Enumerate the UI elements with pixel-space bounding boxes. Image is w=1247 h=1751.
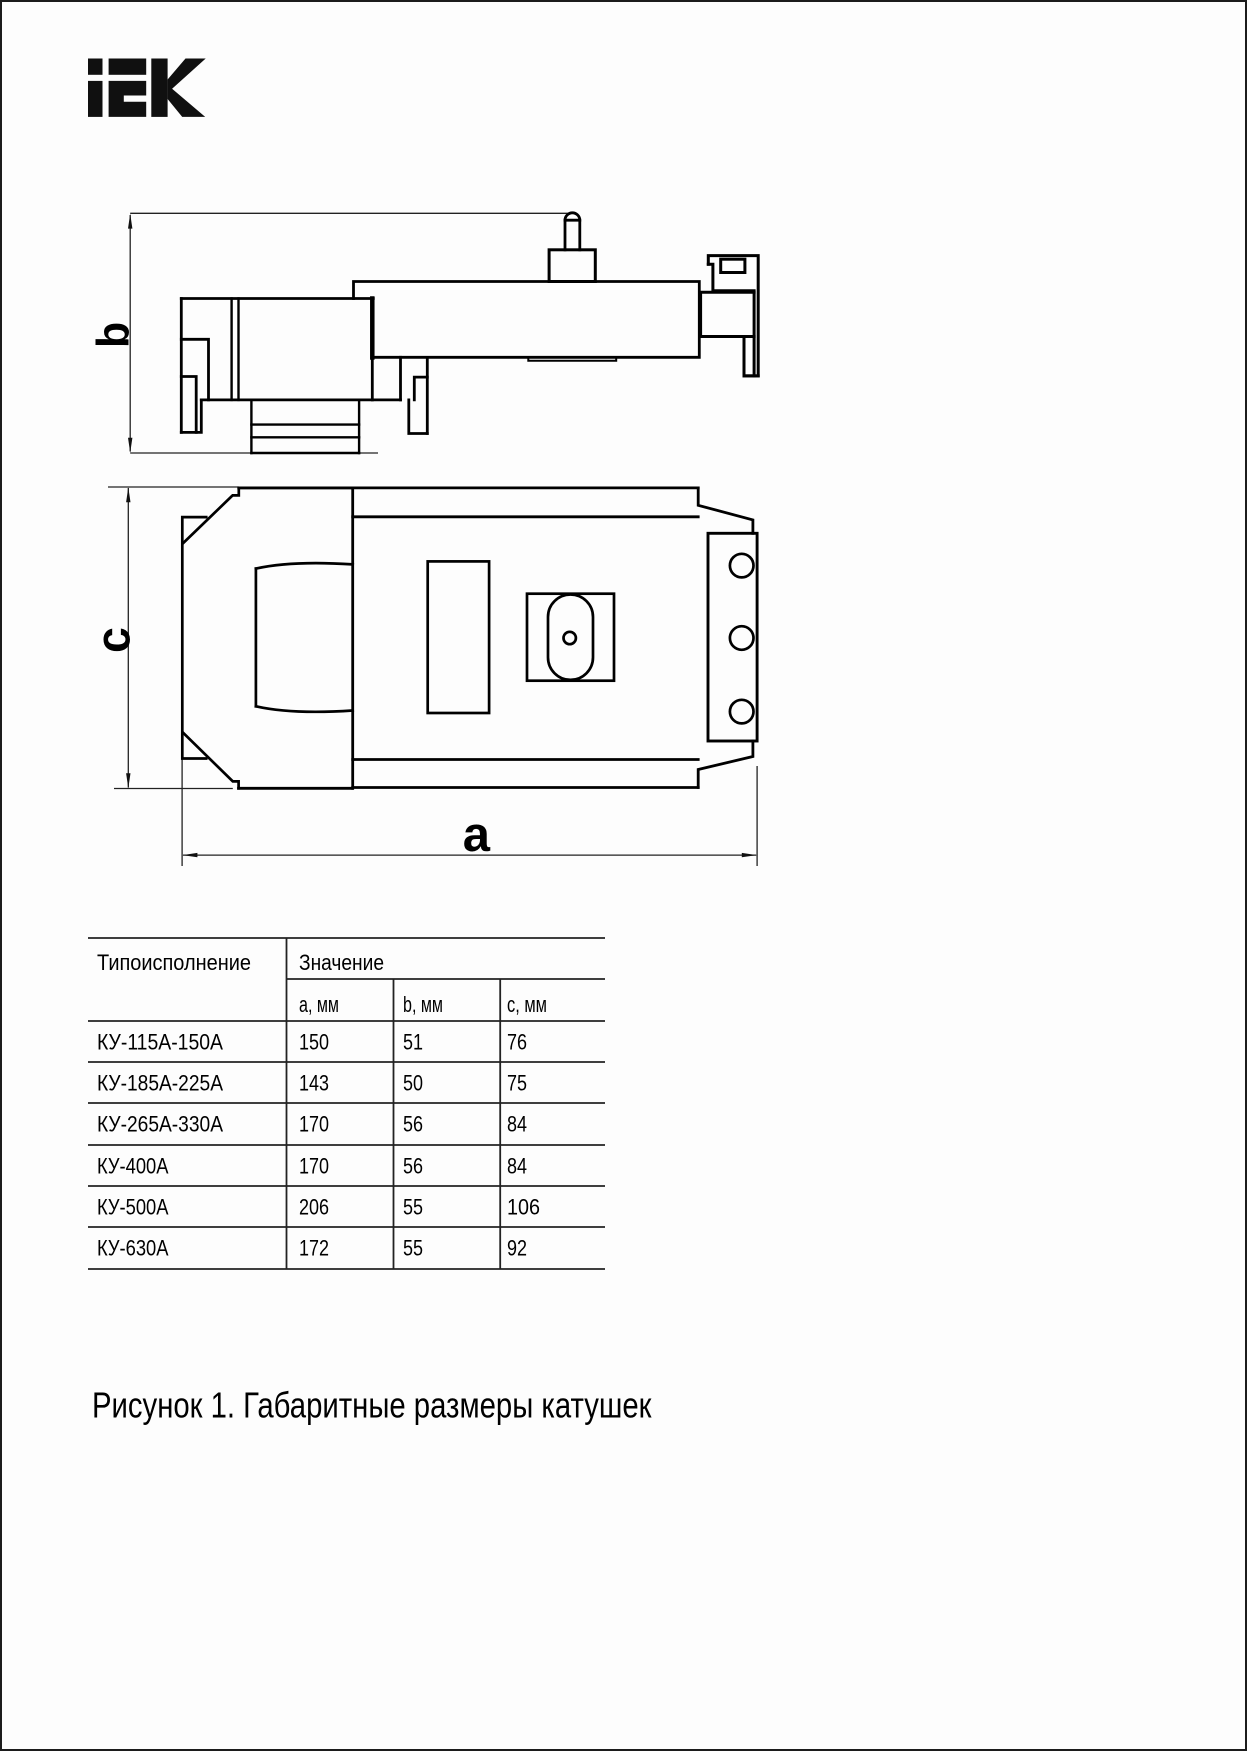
svg-text:76: 76 <box>507 1030 527 1055</box>
svg-text:206: 206 <box>299 1195 329 1220</box>
svg-text:56: 56 <box>403 1154 423 1179</box>
svg-text:a, мм: a, мм <box>299 992 339 1017</box>
svg-text:55: 55 <box>403 1195 423 1220</box>
svg-text:b, мм: b, мм <box>403 992 443 1017</box>
svg-text:143: 143 <box>299 1071 329 1096</box>
svg-text:56: 56 <box>403 1112 423 1137</box>
svg-text:106: 106 <box>507 1195 540 1220</box>
svg-text:84: 84 <box>507 1154 527 1179</box>
svg-text:50: 50 <box>403 1071 423 1096</box>
svg-text:Значение: Значение <box>299 950 384 975</box>
svg-text:c: c <box>87 627 141 653</box>
svg-text:a: a <box>463 808 491 862</box>
svg-text:КУ-400А: КУ-400А <box>97 1154 169 1179</box>
svg-text:75: 75 <box>507 1071 527 1096</box>
svg-text:92: 92 <box>507 1236 527 1261</box>
svg-text:170: 170 <box>299 1112 329 1137</box>
svg-text:КУ-185А-225А: КУ-185А-225А <box>97 1071 223 1096</box>
svg-text:КУ-500А: КУ-500А <box>97 1195 169 1220</box>
svg-text:84: 84 <box>507 1112 527 1137</box>
svg-text:170: 170 <box>299 1154 329 1179</box>
svg-text:172: 172 <box>299 1236 329 1261</box>
svg-text:Рисунок 1. Габаритные размеры: Рисунок 1. Габаритные размеры катушек <box>92 1384 652 1425</box>
svg-text:55: 55 <box>403 1236 423 1261</box>
svg-text:Типоисполнение: Типоисполнение <box>97 950 251 975</box>
svg-text:КУ-115А-150А: КУ-115А-150А <box>97 1030 223 1055</box>
svg-text:150: 150 <box>299 1030 329 1055</box>
svg-text:c, мм: c, мм <box>507 992 547 1017</box>
svg-text:КУ-265А-330А: КУ-265А-330А <box>97 1112 223 1137</box>
svg-text:51: 51 <box>403 1030 423 1055</box>
svg-text:b: b <box>89 322 139 348</box>
svg-text:КУ-630А: КУ-630А <box>97 1236 169 1261</box>
